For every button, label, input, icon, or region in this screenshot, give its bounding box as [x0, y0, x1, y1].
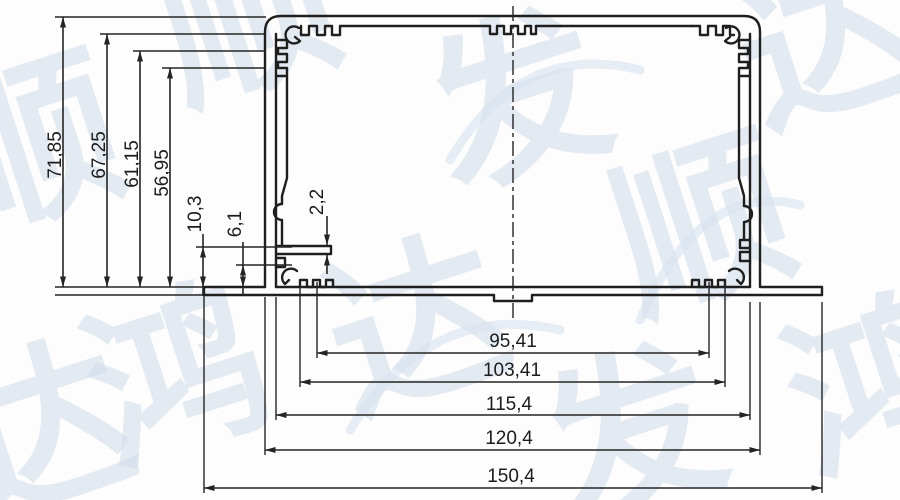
dim-label-6-1: 6,1 [225, 211, 246, 237]
dim-label-67-25: 67,25 [89, 131, 110, 179]
right-lower-steps [740, 240, 750, 261]
right-wall-steps [739, 40, 750, 76]
dim-label-61-15: 61,15 [122, 140, 143, 188]
dim-label-10-3: 10,3 [185, 196, 206, 233]
watermark-strokes [350, 64, 800, 430]
top-inner-serrations-left [301, 26, 490, 35]
screw-boss-bottom-right [729, 269, 744, 284]
top-inner-serrations-center [490, 26, 692, 34]
dim-label-115-4: 115,4 [486, 394, 533, 415]
right-wall-channel [739, 76, 744, 206]
dim-label-95-41: 95,41 [489, 331, 537, 352]
dimension-lines [63, 17, 822, 488]
dim-label-71-85: 71,85 [45, 131, 66, 179]
drawing-canvas: 发 顺 达 达 鸿 顺 鸿 发 达 顺 [0, 0, 900, 500]
dim-label-103-41: 103,41 [483, 360, 541, 381]
screw-boss-bottom-left [282, 269, 297, 284]
dim-label-150-4: 150,4 [487, 466, 535, 487]
dim-label-2-2: 2,2 [307, 189, 328, 215]
left-wall-channel [282, 76, 287, 204]
profile-dimension-drawing: 71,85 67,25 61,15 56,95 10,3 6,1 2,2 95,… [0, 0, 900, 500]
dim-label-56-95: 56,95 [152, 149, 173, 197]
dim-label-120-4: 120,4 [485, 428, 533, 449]
left-wall-steps [276, 40, 287, 76]
dimension-labels: 71,85 67,25 61,15 56,95 10,3 6,1 2,2 95,… [45, 131, 541, 487]
